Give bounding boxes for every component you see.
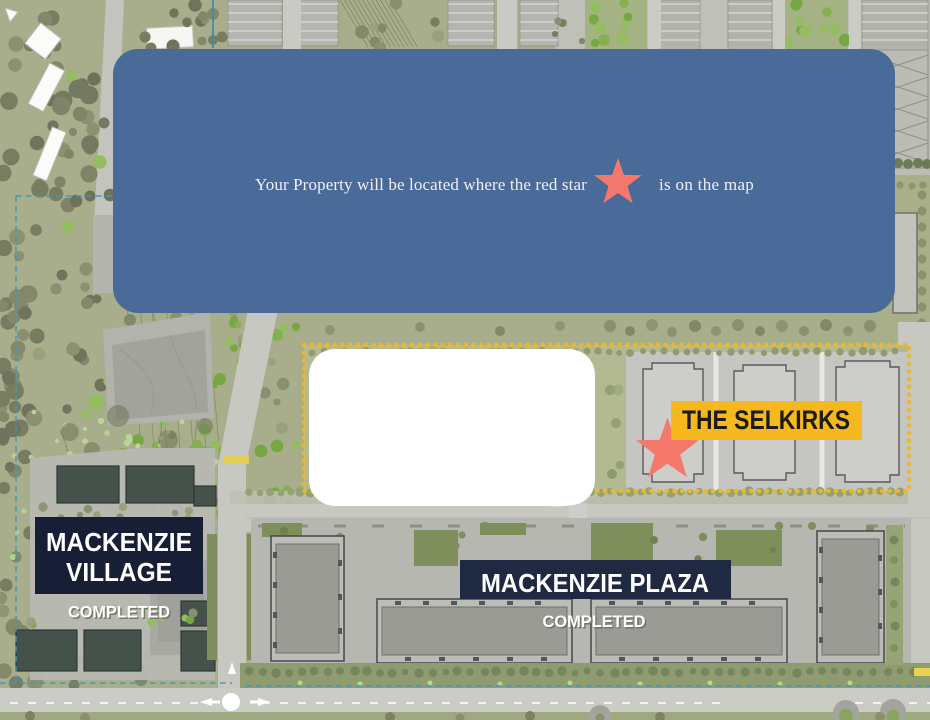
svg-text:is on the map: is on the map <box>659 175 754 194</box>
svg-text:MACKENZIE PLAZA: MACKENZIE PLAZA <box>481 568 709 598</box>
svg-text:COMPLETED: COMPLETED <box>68 603 170 622</box>
svg-text:COMPLETED: COMPLETED <box>543 612 646 631</box>
svg-text:Your Property will be located: Your Property will be located where the … <box>255 175 587 194</box>
svg-text:MACKENZIE: MACKENZIE <box>46 527 192 557</box>
svg-text:THE SELKIRKS: THE SELKIRKS <box>682 405 850 435</box>
svg-text:VILLAGE: VILLAGE <box>66 557 172 587</box>
